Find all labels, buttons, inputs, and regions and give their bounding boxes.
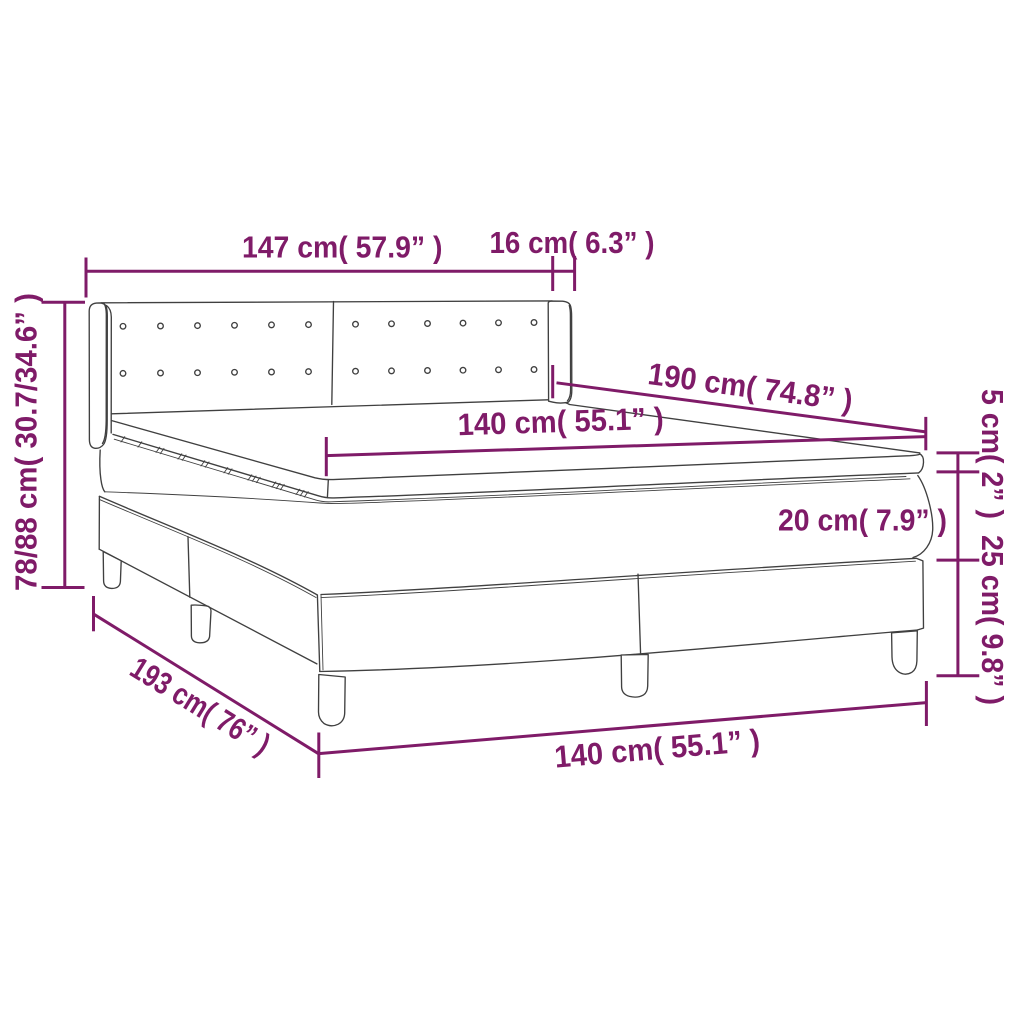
svg-text:25 cm( 9.8” ): 25 cm( 9.8” ) bbox=[975, 535, 1010, 705]
svg-text:147 cm( 57.9” ): 147 cm( 57.9” ) bbox=[242, 229, 443, 264]
svg-text:16 cm( 6.3” ): 16 cm( 6.3” ) bbox=[490, 225, 655, 260]
svg-text:20 cm( 7.9” ): 20 cm( 7.9” ) bbox=[778, 503, 947, 538]
svg-text:78/88 cm( 30.7/34.6” ): 78/88 cm( 30.7/34.6” ) bbox=[9, 293, 44, 591]
svg-text:140 cm( 55.1” ): 140 cm( 55.1” ) bbox=[457, 401, 664, 442]
svg-text:5 cm( 2” ): 5 cm( 2” ) bbox=[975, 389, 1010, 519]
